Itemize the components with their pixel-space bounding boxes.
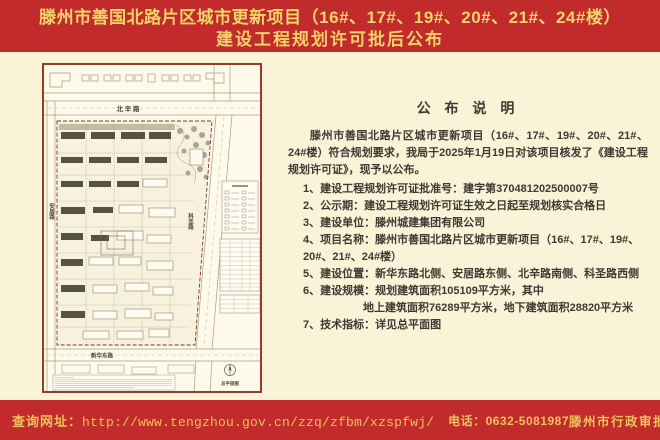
issuer-name: 滕州市行政审批服务局监制 — [569, 411, 660, 430]
query-url: http://www.tengzhou.gov.cn/zzq/zfbm/xzsp… — [82, 415, 434, 430]
road-label-anju: 安居路 — [48, 202, 55, 221]
announcement-item-3: 3、建设单位：滕州城建集团有限公司 — [288, 215, 648, 232]
tree-strip — [59, 124, 175, 130]
map-legend — [222, 181, 258, 233]
announcement-item-1: 1、建设工程规划许可证批准号：建字第370481202500007号 — [288, 181, 648, 198]
query-url-group: 查询网址： http://www.tengzhou.gov.cn/zzq/zfb… — [12, 411, 434, 430]
indicator-table-1 — [220, 239, 260, 291]
poster: 滕州市善国北路片区城市更新项目（16#、17#、19#、20#、21#、24#楼… — [0, 0, 660, 440]
announcement-item-5: 5、建设位置：新华东路北侧、安居路东侧、北辛路南侧、科圣路西侧 — [288, 266, 648, 283]
road-label-beixin: 北 辛 路 — [116, 104, 140, 113]
road-label-kesheng: 科圣路 — [187, 212, 194, 231]
road-xinhua-east — [44, 349, 260, 361]
road-beixin — [44, 101, 260, 115]
query-url-label: 查询网址： — [12, 411, 82, 430]
road-anju — [47, 101, 55, 391]
south-neighborhood-buildings — [62, 365, 194, 374]
plan-notes — [53, 375, 175, 390]
announcement-item-6-continued: 地上建筑面积76289平方米，地下建筑面积28820平方米 — [288, 300, 648, 317]
announcement-item-2: 2、公示期：建设工程规划许可证生效之日起至规划核实合格日 — [288, 198, 648, 215]
content-panel: 北 辛 路 安居路 — [0, 52, 660, 400]
announcement-item-6: 6、建设规模：规划建筑面积105109平方米，其中 — [288, 283, 648, 300]
title-line-2: 建设工程规划许可批后公布 — [0, 29, 660, 51]
indicator-table-2 — [220, 295, 260, 313]
site-plan-map: 北 辛 路 安居路 — [42, 63, 262, 393]
phone-number: 电话：0632-5081987 — [448, 412, 569, 429]
north-neighborhood-buildings — [44, 73, 260, 93]
road-label-xinhua: 新华东路 — [91, 352, 114, 360]
announcement: 公 布 说 明 滕州市善国北路片区城市更新项目（16#、17#、19#、20#、… — [288, 98, 648, 334]
announcement-item-4: 4、项目名称：滕州市善国北路片区城市更新项目（16#、17#、19#、20#、2… — [288, 232, 648, 266]
poster-title: 滕州市善国北路片区城市更新项目（16#、17#、19#、20#、21#、24#楼… — [0, 6, 660, 51]
announcement-heading: 公 布 说 明 — [288, 98, 648, 118]
site-plan-drawing: 北 辛 路 安居路 — [44, 65, 260, 391]
north-arrow-icon — [225, 364, 236, 376]
footer: 查询网址： http://www.tengzhou.gov.cn/zzq/zfb… — [0, 400, 660, 440]
title-line-1: 滕州市善国北路片区城市更新项目（16#、17#、19#、20#、21#、24#楼… — [0, 6, 660, 29]
announcement-item-7: 7、技术指标：详见总平面图 — [288, 317, 648, 334]
plan-caption: 总平面图 — [221, 380, 239, 387]
announcement-intro: 滕州市善国北路片区城市更新项目（16#、17#、19#、20#、21#、24#楼… — [288, 128, 648, 179]
